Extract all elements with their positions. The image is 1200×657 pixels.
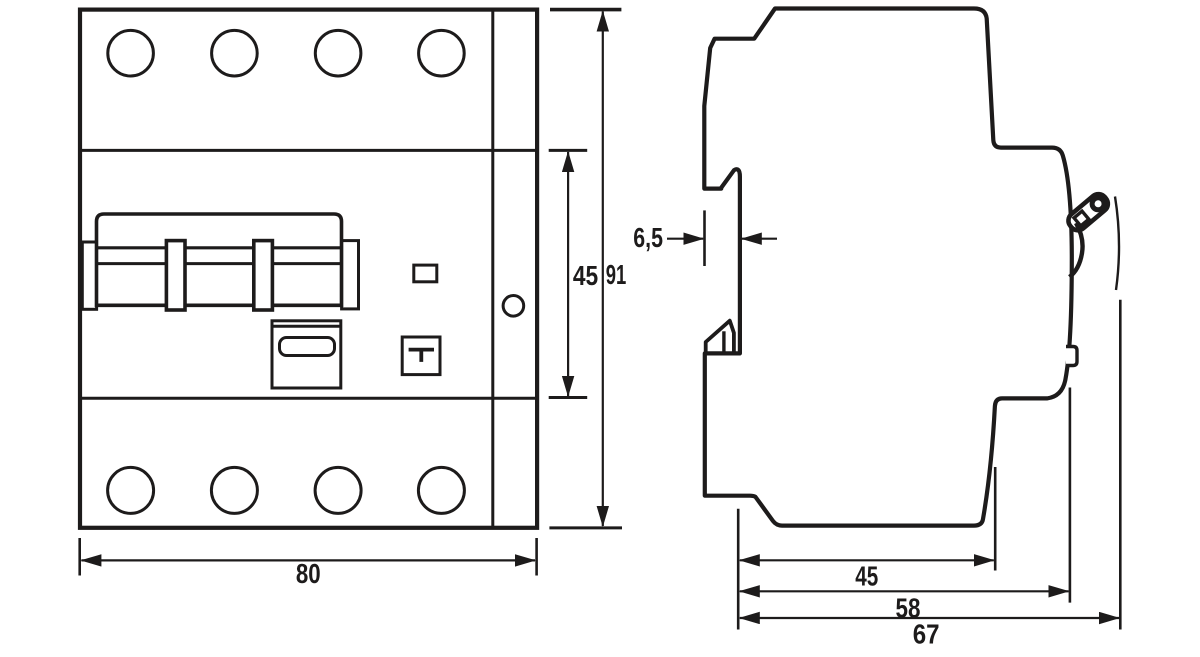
svg-text:80: 80 <box>296 558 321 589</box>
svg-text:45: 45 <box>573 260 598 291</box>
svg-text:6,5: 6,5 <box>633 222 663 253</box>
svg-text:45: 45 <box>855 561 878 592</box>
svg-text:91: 91 <box>606 259 627 290</box>
svg-text:67: 67 <box>913 619 940 650</box>
